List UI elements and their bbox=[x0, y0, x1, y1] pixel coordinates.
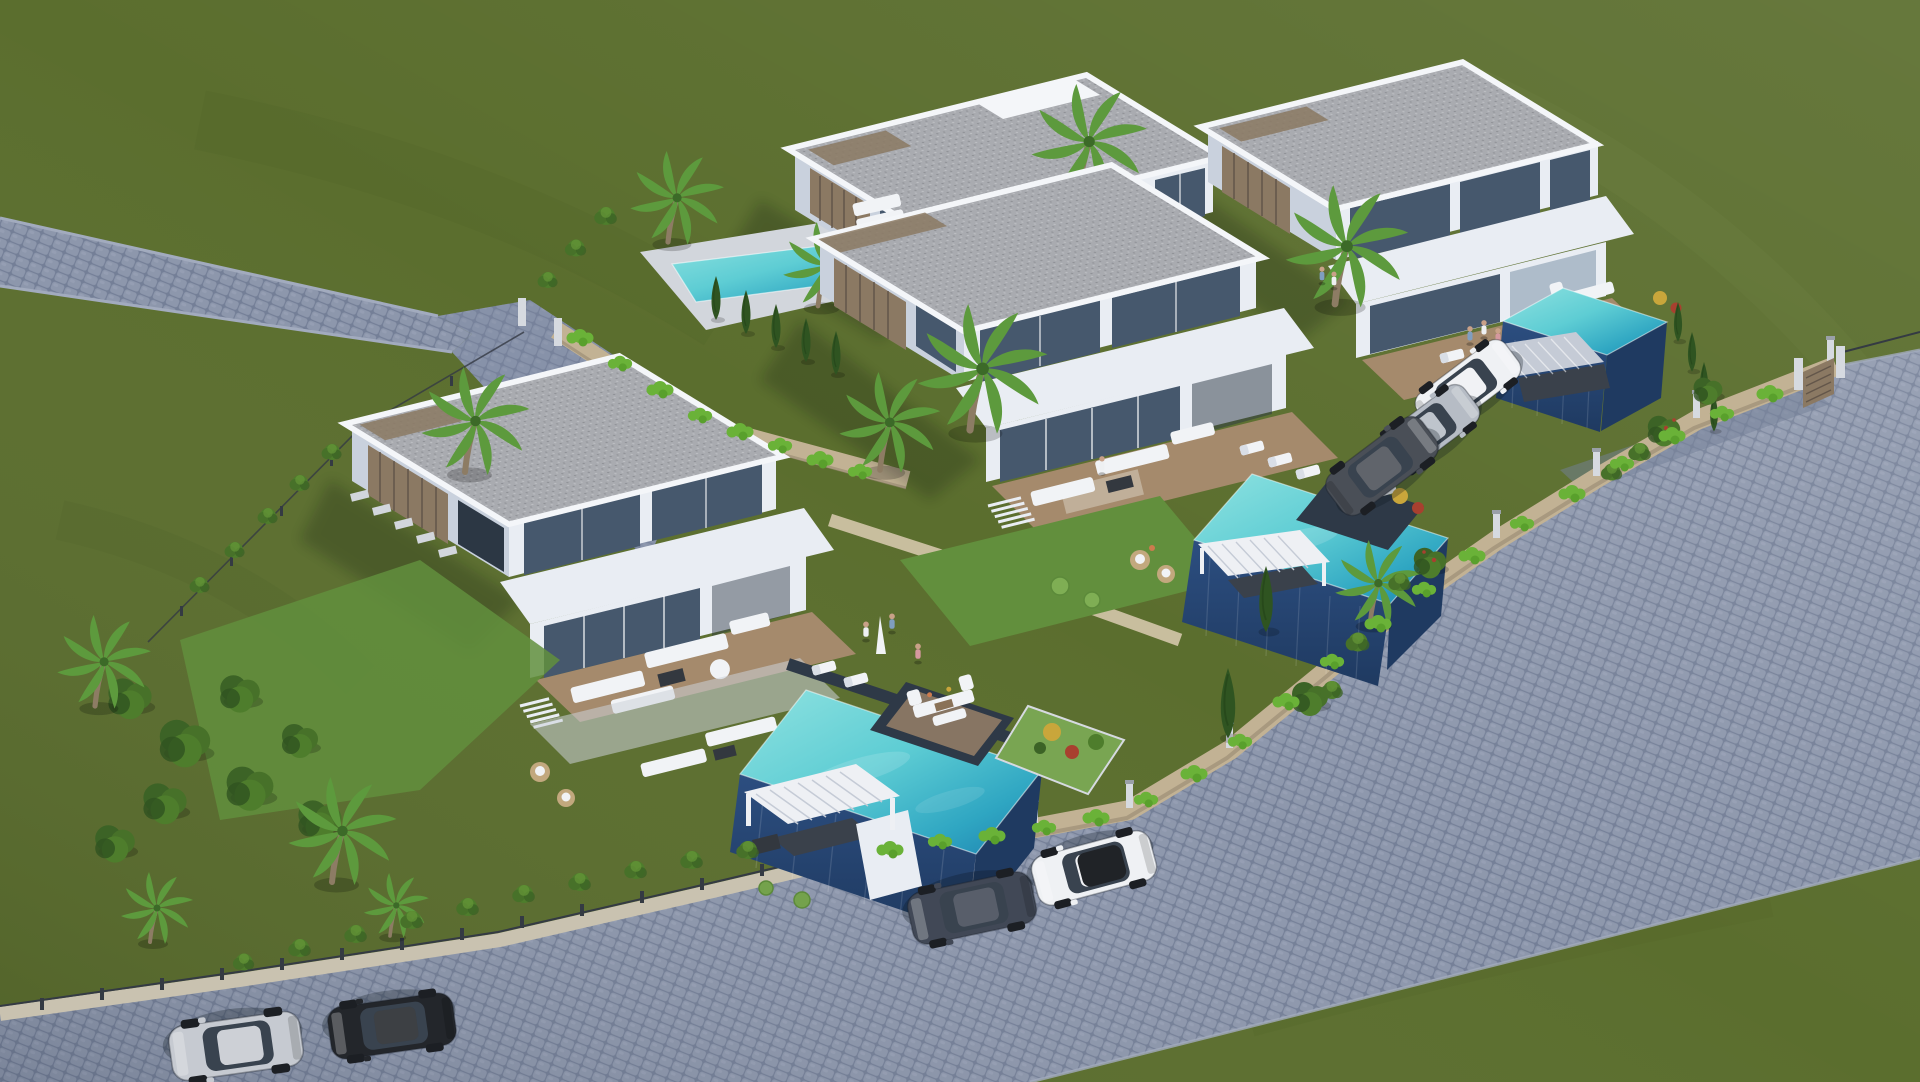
person bbox=[914, 644, 922, 665]
scene-canvas bbox=[0, 0, 1920, 1082]
planter-yellow bbox=[1653, 291, 1667, 305]
planter-red bbox=[1412, 502, 1424, 514]
person bbox=[888, 614, 896, 635]
person bbox=[862, 622, 870, 643]
aerial-render bbox=[0, 0, 1920, 1082]
